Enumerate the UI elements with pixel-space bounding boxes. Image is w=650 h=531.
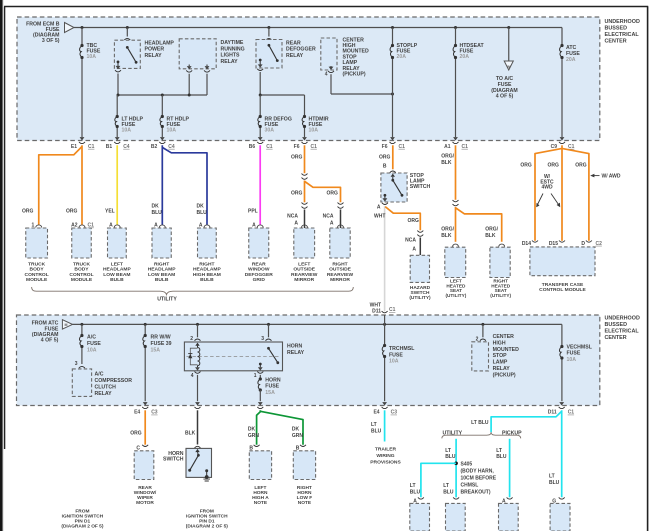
svg-text:ORG: ORG	[291, 191, 303, 197]
svg-text:UTILITY: UTILITY	[443, 430, 463, 436]
svg-text:IGNITION SWITCH: IGNITION SWITCH	[62, 514, 104, 520]
svg-text:CONTROL: CONTROL	[69, 272, 93, 278]
svg-text:LAMP: LAMP	[493, 360, 508, 366]
svg-text:LT BLU: LT BLU	[471, 420, 489, 426]
svg-text:BUSSED: BUSSED	[605, 25, 628, 31]
svg-text:CENTER: CENTER	[605, 335, 627, 341]
svg-text:D14: D14	[522, 241, 531, 247]
svg-text:LOW BEAM: LOW BEAM	[148, 272, 175, 278]
svg-text:NOTE: NOTE	[254, 500, 268, 506]
svg-text:CONTROL MODULE: CONTROL MODULE	[539, 287, 586, 293]
svg-text:WIPER: WIPER	[137, 495, 153, 501]
svg-text:ATC: ATC	[566, 45, 577, 51]
svg-text:ORG: ORG	[291, 155, 303, 161]
svg-text:BLU: BLU	[445, 454, 456, 460]
svg-text:E4: E4	[373, 410, 379, 416]
svg-text:HEADLAMP: HEADLAMP	[148, 267, 176, 273]
svg-text:PROVISIONS: PROVISIONS	[370, 460, 401, 466]
svg-text:LT: LT	[445, 448, 451, 454]
svg-text:REAR: REAR	[138, 485, 152, 491]
svg-text:BUSSED: BUSSED	[605, 322, 628, 328]
svg-text:10A: 10A	[87, 347, 97, 353]
svg-text:4: 4	[191, 373, 194, 379]
svg-text:(PICKUP): (PICKUP)	[493, 373, 516, 379]
svg-text:10CM BEFORE: 10CM BEFORE	[461, 475, 497, 481]
svg-text:COMPRESSOR: COMPRESSOR	[95, 378, 133, 384]
svg-text:OUTSIDE: OUTSIDE	[293, 267, 315, 273]
svg-text:LT: LT	[496, 448, 502, 454]
svg-text:CHMSL: CHMSL	[461, 482, 479, 488]
svg-text:HEADLAMP: HEADLAMP	[103, 267, 131, 273]
svg-text:10A: 10A	[567, 357, 577, 363]
svg-text:HIGH: HIGH	[493, 340, 506, 346]
svg-text:OUTSIDE: OUTSIDE	[329, 267, 351, 273]
svg-text:W/ AWD: W/ AWD	[602, 174, 621, 180]
svg-text:ORG/: ORG/	[485, 227, 498, 233]
svg-text:LOW F: LOW F	[297, 495, 313, 501]
svg-text:REAR: REAR	[286, 40, 301, 46]
svg-text:DEFOGGER: DEFOGGER	[286, 47, 316, 53]
svg-text:ORG: ORG	[575, 163, 587, 169]
svg-text:(DIAGRAM 2 OF 5): (DIAGRAM 2 OF 5)	[61, 524, 104, 530]
svg-text:ORG: ORG	[408, 218, 420, 224]
svg-text:ELECTRICAL: ELECTRICAL	[605, 328, 640, 334]
svg-text:PPL: PPL	[248, 208, 258, 214]
svg-text:B2: B2	[151, 144, 158, 150]
svg-text:TRUCK: TRUCK	[73, 261, 91, 267]
svg-text:BODY: BODY	[74, 267, 89, 273]
svg-text:A/C: A/C	[87, 335, 96, 341]
svg-text:4: 4	[325, 71, 328, 77]
svg-text:BLU: BLU	[443, 489, 454, 495]
svg-text:MODULE: MODULE	[26, 277, 48, 283]
svg-text:HORN: HORN	[287, 344, 303, 350]
svg-text:DAYTIME: DAYTIME	[221, 40, 244, 46]
svg-text:BLK: BLK	[185, 430, 196, 436]
svg-text:MOUNTED: MOUNTED	[493, 347, 519, 353]
svg-text:ORG: ORG	[327, 191, 339, 197]
svg-text:S405: S405	[461, 461, 473, 467]
svg-text:A/C: A/C	[95, 372, 104, 378]
svg-text:10A: 10A	[122, 128, 132, 134]
svg-text:A: A	[377, 204, 381, 210]
svg-text:C4: C4	[168, 144, 175, 150]
svg-text:4 OF 5): 4 OF 5)	[496, 94, 514, 100]
svg-text:BLU: BLU	[152, 210, 163, 216]
svg-text:RIGHT: RIGHT	[297, 485, 312, 491]
svg-text:YEL: YEL	[105, 208, 115, 214]
svg-text:3 OF 5): 3 OF 5)	[42, 38, 60, 44]
svg-text:10A: 10A	[389, 359, 399, 365]
svg-text:RUNNING: RUNNING	[221, 46, 245, 52]
svg-text:BREAKOUT): BREAKOUT)	[461, 489, 491, 495]
svg-text:C4: C4	[123, 144, 130, 150]
svg-text:C1: C1	[568, 410, 575, 416]
svg-text:LEFT: LEFT	[254, 485, 266, 491]
svg-text:3: 3	[261, 336, 264, 342]
svg-text:REARVIEW: REARVIEW	[327, 272, 354, 278]
svg-text:20A: 20A	[460, 54, 470, 60]
svg-text:ORG: ORG	[66, 208, 78, 214]
svg-text:10A: 10A	[167, 128, 177, 134]
svg-text:15A: 15A	[265, 390, 275, 396]
svg-text:CENTER: CENTER	[605, 38, 627, 44]
svg-text:IGNITION SWITCH: IGNITION SWITCH	[186, 514, 228, 520]
svg-text:SWITCH: SWITCH	[163, 456, 184, 462]
svg-text:RELAY: RELAY	[287, 350, 305, 356]
svg-text:A: A	[412, 247, 416, 253]
svg-text:NCA: NCA	[405, 238, 416, 244]
svg-text:CONTROL: CONTROL	[25, 272, 49, 278]
svg-text:REARVIEW: REARVIEW	[291, 272, 318, 278]
svg-text:ORG/: ORG/	[441, 154, 454, 160]
svg-text:GRN: GRN	[292, 433, 304, 439]
svg-text:C1: C1	[399, 144, 406, 150]
svg-text:CENTER: CENTER	[493, 334, 515, 340]
svg-text:UNDERHOOD: UNDERHOOD	[605, 19, 640, 25]
svg-text:WINDOW: WINDOW	[248, 267, 270, 273]
svg-text:BLU: BLU	[496, 454, 507, 460]
svg-text:1: 1	[254, 373, 257, 379]
svg-text:LEFT: LEFT	[298, 261, 310, 267]
svg-text:20A: 20A	[566, 57, 576, 63]
svg-text:D11: D11	[548, 410, 557, 416]
svg-text:C1: C1	[462, 144, 469, 150]
svg-text:ORG: ORG	[548, 163, 560, 169]
svg-text:DK: DK	[197, 204, 205, 210]
svg-text:BODY: BODY	[30, 267, 45, 273]
svg-text:3: 3	[75, 361, 78, 367]
svg-text:RELAY: RELAY	[221, 59, 239, 65]
svg-text:BLU: BLU	[371, 428, 382, 434]
svg-text:E4: E4	[134, 410, 140, 416]
svg-text:MIRROR: MIRROR	[294, 277, 314, 283]
svg-text:(DIAGRAM 2 OF 5): (DIAGRAM 2 OF 5)	[186, 524, 229, 530]
svg-text:2: 2	[190, 336, 193, 342]
svg-text:HORN: HORN	[265, 377, 281, 383]
svg-text:PIN D1: PIN D1	[199, 519, 215, 525]
svg-text:(PICKUP): (PICKUP)	[343, 72, 366, 78]
svg-text:(UTILITY): (UTILITY)	[445, 293, 466, 298]
svg-text:C3: C3	[151, 410, 158, 416]
svg-text:C1: C1	[88, 223, 95, 229]
svg-text:C1: C1	[389, 307, 396, 313]
svg-text:PIN D1: PIN D1	[75, 519, 91, 525]
svg-text:VECHMSL: VECHMSL	[567, 344, 593, 350]
svg-text:GRN: GRN	[248, 433, 260, 439]
svg-text:RR W/W: RR W/W	[151, 335, 171, 341]
svg-text:DK: DK	[292, 427, 300, 433]
svg-text:PICKUP: PICKUP	[502, 430, 522, 436]
svg-text:ORG: ORG	[130, 430, 142, 436]
svg-text:BLK: BLK	[441, 160, 452, 166]
svg-text:FUSE: FUSE	[566, 51, 580, 57]
svg-text:ELECTRICAL: ELECTRICAL	[605, 32, 640, 38]
svg-text:FUSE 39: FUSE 39	[151, 341, 172, 347]
svg-text:RELAY: RELAY	[286, 53, 304, 59]
svg-text:LIGHTS: LIGHTS	[221, 53, 241, 59]
svg-text:UNDERHOOD: UNDERHOOD	[605, 315, 640, 321]
svg-text:HIGH A: HIGH A	[252, 495, 269, 501]
svg-text:D: D	[581, 241, 585, 247]
svg-text:A: A	[294, 220, 298, 226]
svg-text:HEADLAMP: HEADLAMP	[145, 40, 175, 46]
svg-text:ORG: ORG	[379, 155, 391, 161]
svg-text:NOTE: NOTE	[298, 500, 312, 506]
svg-text:C1: C1	[311, 144, 318, 150]
svg-text:D15: D15	[549, 241, 558, 247]
svg-text:NCA: NCA	[287, 214, 298, 220]
svg-text:WHT: WHT	[374, 213, 385, 219]
svg-text:C1: C1	[88, 144, 95, 150]
svg-text:WIRING: WIRING	[376, 453, 394, 459]
svg-text:BLK: BLK	[441, 233, 452, 239]
svg-text:RIGHT: RIGHT	[332, 261, 347, 267]
svg-text:BLU: BLU	[410, 489, 421, 495]
svg-text:SWITCH: SWITCH	[410, 184, 431, 190]
svg-text:BULB: BULB	[200, 277, 214, 283]
svg-text:HIGH BEAM: HIGH BEAM	[193, 272, 221, 278]
svg-text:LT: LT	[410, 483, 416, 489]
svg-text:(BODY HARN,: (BODY HARN,	[461, 468, 495, 474]
svg-text:RELAY: RELAY	[145, 53, 163, 59]
svg-text:A1: A1	[444, 144, 451, 150]
svg-text:D11: D11	[372, 309, 381, 315]
svg-text:W: W	[507, 65, 511, 69]
svg-text:BLU: BLU	[197, 210, 208, 216]
svg-text:LEFT: LEFT	[111, 261, 123, 267]
svg-text:C1: C1	[266, 144, 273, 150]
svg-text:HEADLAMP: HEADLAMP	[193, 267, 221, 273]
svg-text:NCA: NCA	[323, 214, 334, 220]
svg-text:STOP: STOP	[493, 353, 508, 359]
svg-text:FUSE: FUSE	[87, 341, 101, 347]
svg-text:MOTOR: MOTOR	[136, 500, 154, 506]
svg-text:10A: 10A	[87, 54, 97, 60]
svg-text:ORG: ORG	[520, 163, 532, 169]
svg-text:FROM: FROM	[75, 508, 89, 514]
svg-text:RELAY: RELAY	[493, 366, 511, 372]
svg-text:RELAY: RELAY	[95, 391, 113, 397]
svg-text:TRAILER: TRAILER	[375, 446, 397, 452]
svg-text:DEFOGGER: DEFOGGER	[245, 272, 273, 278]
svg-text:FROM: FROM	[200, 508, 214, 514]
svg-text:BLK: BLK	[485, 233, 496, 239]
svg-text:30A: 30A	[265, 128, 275, 134]
svg-text:ORG: ORG	[22, 208, 34, 214]
svg-text:F6: F6	[294, 144, 300, 150]
svg-text:10A: 10A	[309, 128, 319, 134]
svg-text:RIGHT: RIGHT	[199, 261, 214, 267]
svg-text:POWER: POWER	[145, 47, 165, 53]
svg-text:E1: E1	[71, 144, 77, 150]
svg-text:DK: DK	[248, 427, 256, 433]
svg-text:F6: F6	[382, 144, 388, 150]
svg-text:UTILITY: UTILITY	[157, 297, 177, 303]
svg-text:TRUCK: TRUCK	[28, 261, 46, 267]
svg-text:C2: C2	[596, 241, 603, 247]
svg-text:(UTILITY): (UTILITY)	[409, 295, 431, 301]
svg-text:REAR: REAR	[252, 261, 266, 267]
svg-text:BLU: BLU	[549, 480, 560, 486]
svg-text:CLUTCH: CLUTCH	[95, 385, 117, 391]
svg-text:ORG/: ORG/	[441, 227, 454, 233]
svg-text:C3: C3	[391, 410, 398, 416]
svg-text:20A: 20A	[397, 54, 407, 60]
svg-text:4 OF 5): 4 OF 5)	[41, 338, 59, 344]
svg-text:DK: DK	[152, 204, 160, 210]
svg-text:15A: 15A	[151, 347, 161, 353]
svg-text:TRCHMSL: TRCHMSL	[389, 346, 415, 352]
svg-text:M: M	[65, 323, 68, 327]
svg-text:LOW BEAM: LOW BEAM	[103, 272, 130, 278]
svg-text:TRANSFER CASE: TRANSFER CASE	[542, 282, 584, 288]
svg-text:FUSE: FUSE	[567, 351, 581, 357]
svg-text:LT: LT	[549, 474, 555, 480]
svg-text:FUSE: FUSE	[265, 384, 279, 390]
svg-text:RIGHT: RIGHT	[154, 261, 169, 267]
svg-text:BULB: BULB	[110, 277, 124, 283]
svg-text:B6: B6	[249, 144, 256, 150]
svg-text:MIRROR: MIRROR	[330, 277, 350, 283]
svg-text:LT: LT	[443, 483, 449, 489]
svg-text:B: B	[383, 164, 387, 170]
svg-text:MODULE: MODULE	[71, 277, 93, 283]
svg-text:LT: LT	[371, 422, 377, 428]
svg-text:(UTILITY): (UTILITY)	[490, 293, 511, 298]
svg-text:B1: B1	[106, 144, 113, 150]
svg-text:GRID: GRID	[253, 277, 266, 283]
svg-text:A: A	[330, 220, 334, 226]
svg-text:4WD: 4WD	[541, 185, 553, 191]
svg-text:FUSE: FUSE	[389, 352, 403, 358]
svg-text:BULB: BULB	[155, 277, 169, 283]
